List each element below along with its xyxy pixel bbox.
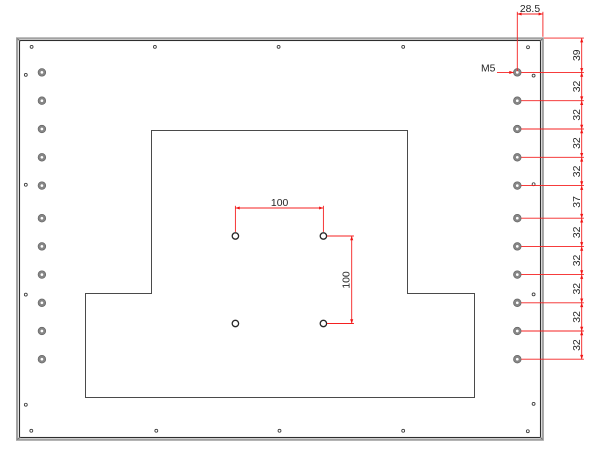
svg-text:28.5: 28.5 [520, 4, 540, 15]
svg-text:32: 32 [572, 226, 583, 238]
svg-text:32: 32 [572, 81, 583, 93]
svg-text:100: 100 [342, 271, 353, 289]
svg-text:39: 39 [572, 49, 583, 61]
svg-text:32: 32 [572, 165, 583, 177]
svg-text:32: 32 [572, 311, 583, 323]
svg-text:32: 32 [572, 137, 583, 149]
svg-text:37: 37 [572, 196, 583, 208]
svg-text:32: 32 [572, 339, 583, 351]
svg-text:M5: M5 [481, 64, 496, 75]
svg-text:32: 32 [572, 255, 583, 267]
svg-text:100: 100 [271, 198, 289, 209]
svg-text:32: 32 [572, 283, 583, 295]
svg-text:32: 32 [572, 109, 583, 121]
